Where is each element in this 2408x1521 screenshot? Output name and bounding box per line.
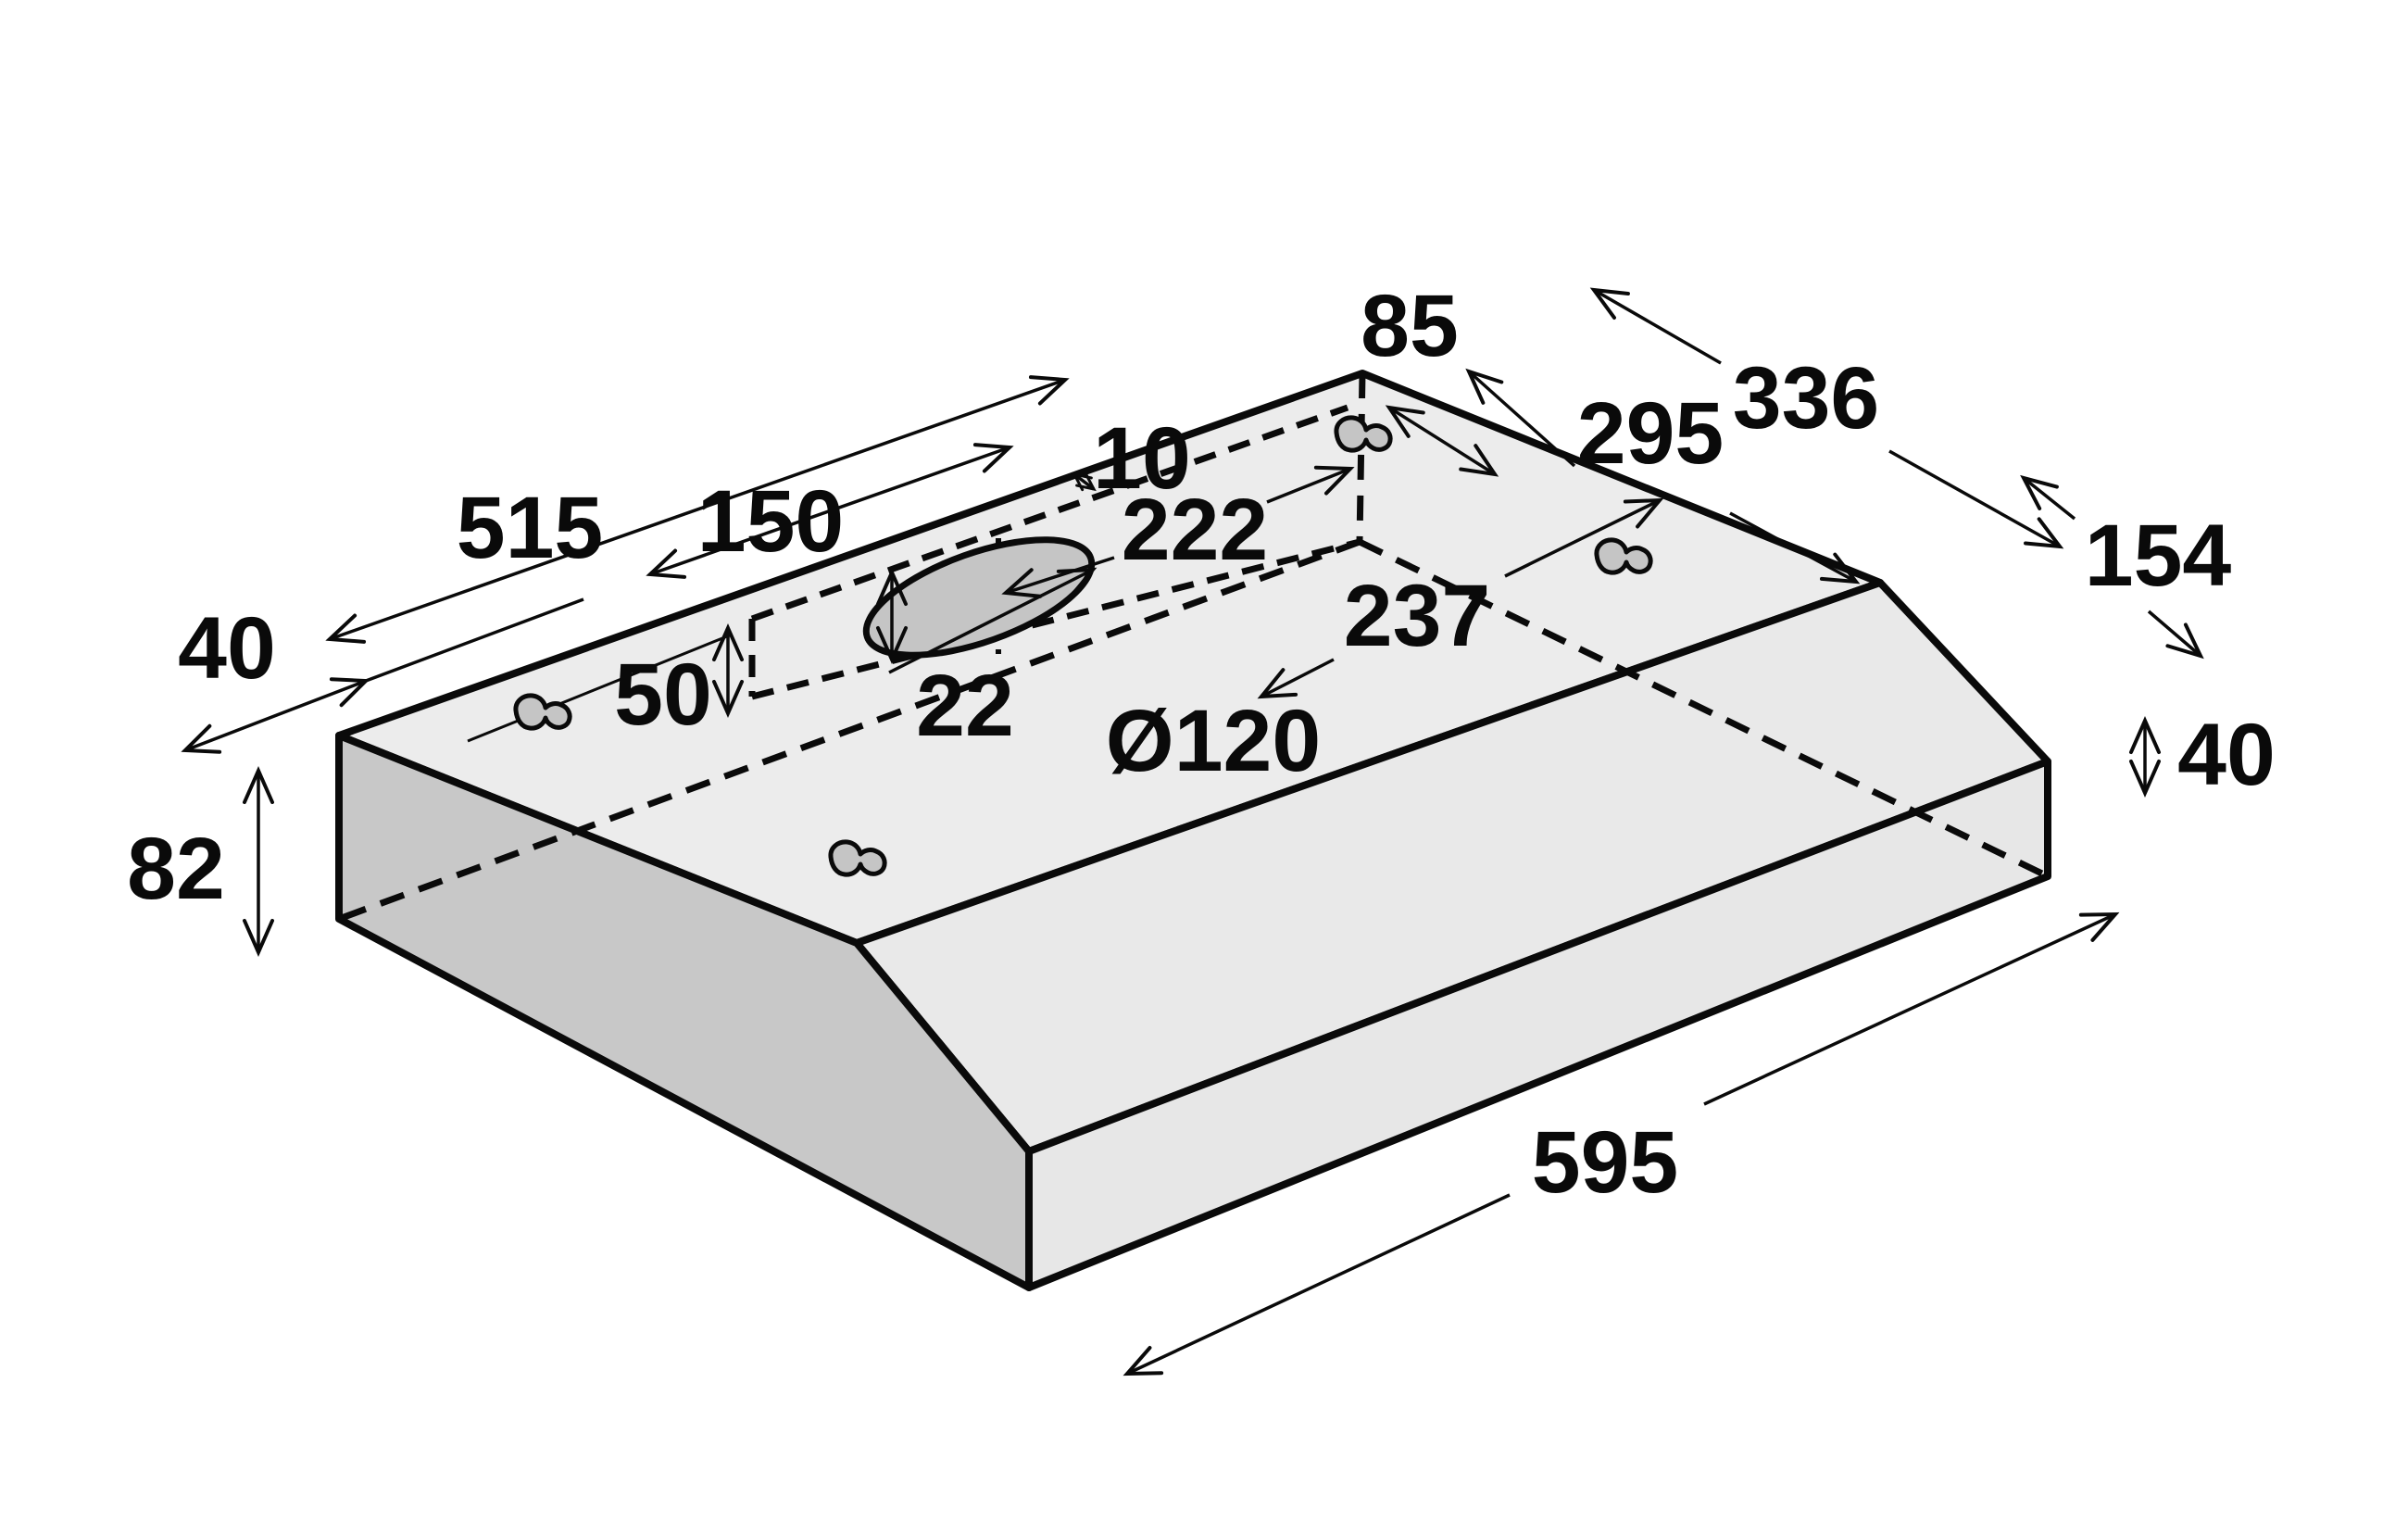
dim-label-515: 515 [457,479,604,577]
dim-label-85: 85 [1361,277,1459,375]
hood-isometric-diagram: 5151504082502210222Ø12023785295336154405… [0,0,2408,1521]
dim-label-595: 595 [1532,1113,1679,1212]
dim-line-154-upper [2024,478,2075,519]
dim-line-336-right [1889,451,2060,547]
dim-line-336-left [1594,290,1721,363]
dim-label-154: 154 [2085,507,2232,605]
diagram-page: 5151504082502210222Ø12023785295336154405… [0,0,2408,1521]
dim-label-82: 82 [127,820,225,918]
dim-line-154-lower [2149,611,2201,656]
dim-label-150: 150 [697,472,845,571]
dim-label-295: 295 [1577,384,1724,483]
dim-label-336: 336 [1733,349,1880,447]
dim-label-237: 237 [1344,567,1491,665]
dim-label-222: 222 [1122,481,1269,579]
dim-label-50: 50 [614,646,712,744]
dim-label-40-right: 40 [2177,706,2276,804]
dim-label-22: 22 [916,657,1014,755]
dim-label-duct-diameter: Ø120 [1106,692,1321,790]
dim-label-40-left: 40 [178,599,276,698]
